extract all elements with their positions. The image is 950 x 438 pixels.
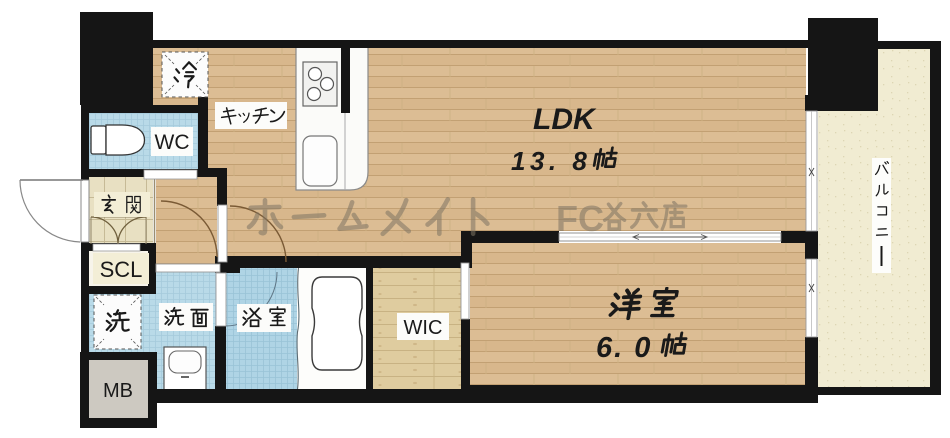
svg-text:WC: WC xyxy=(155,131,190,154)
svg-text:FC: FC xyxy=(556,198,604,239)
svg-text:13. 8: 13. 8 xyxy=(511,146,591,176)
svg-text:MB: MB xyxy=(103,380,133,402)
svg-text:SCL: SCL xyxy=(100,257,143,282)
svg-text:WIC: WIC xyxy=(404,317,443,339)
svg-text:6. 0: 6. 0 xyxy=(596,332,652,364)
svg-text:LDK: LDK xyxy=(533,103,597,136)
